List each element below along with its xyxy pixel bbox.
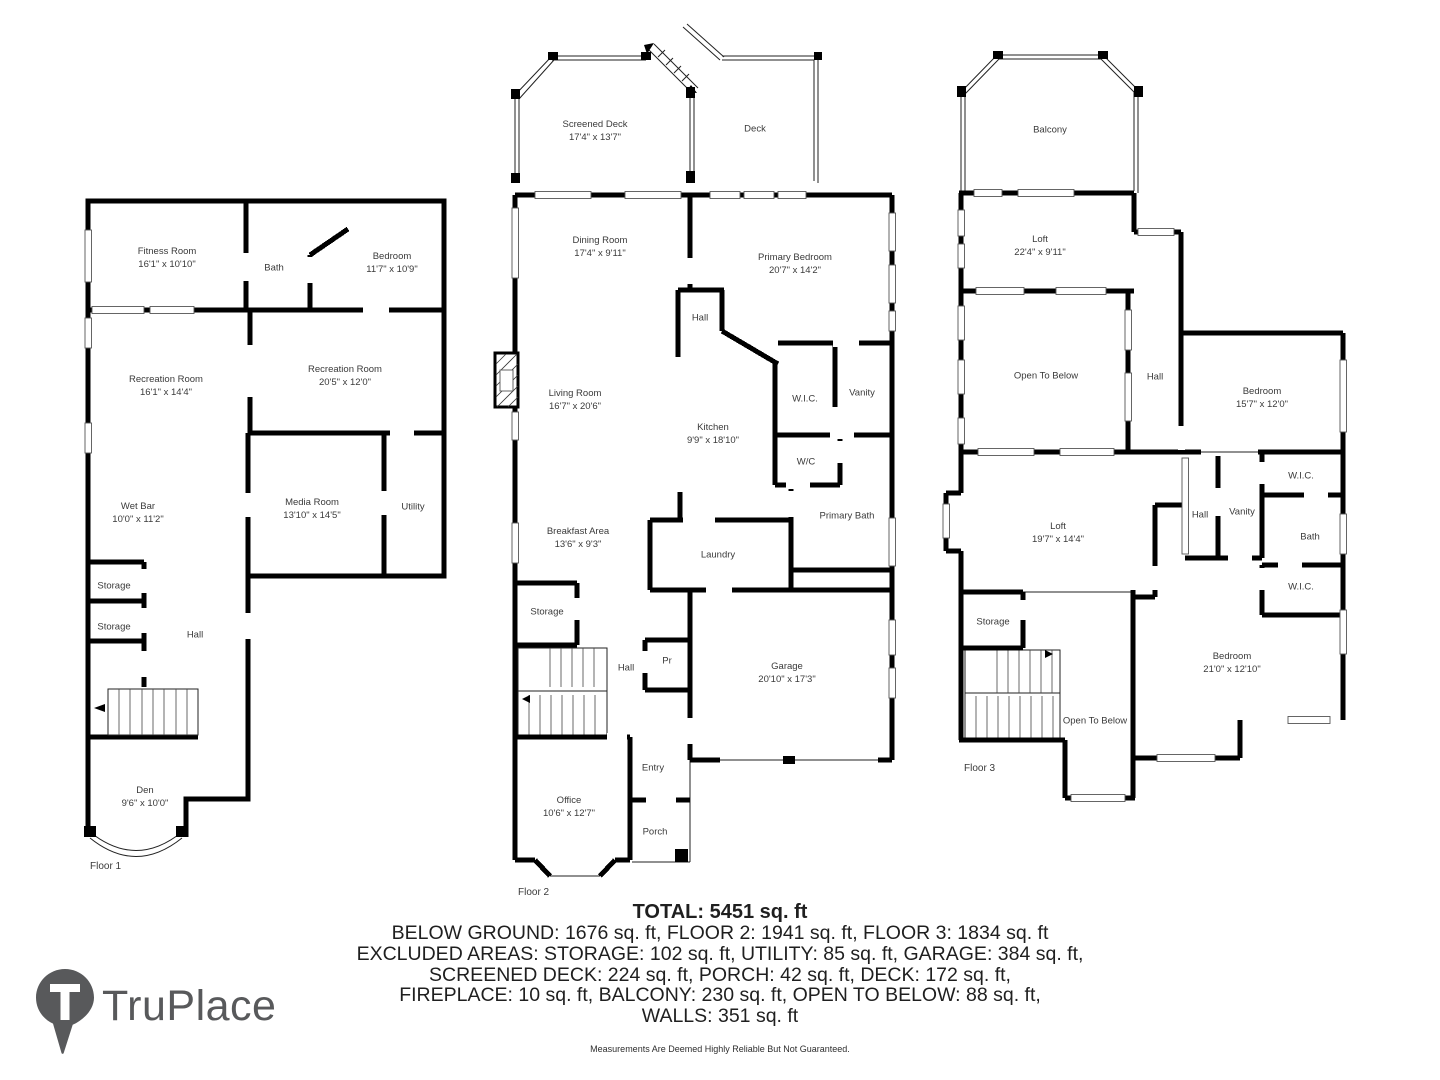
floor2-plan: Screened Deck17'4" x 13'7" Deck Dining R…: [488, 23, 900, 903]
room-label-hall: Hall: [187, 628, 203, 641]
floor2-label: Floor 2: [518, 887, 549, 898]
room-label-deck: Deck: [744, 122, 766, 135]
room-label-wic: W.I.C.: [792, 392, 818, 405]
room-label-hall-upper-f3: Hall: [1147, 370, 1163, 383]
room-label-kitchen: Kitchen9'9" x 18'10": [687, 421, 739, 447]
room-label-vanity: Vanity: [849, 386, 875, 399]
room-label-bedroom2-f3: Bedroom21'0" x 12'10": [1203, 650, 1260, 676]
room-label-storage1: Storage: [97, 579, 130, 592]
room-label-entry: Entry: [642, 761, 664, 774]
room-label-office: Office10'6" x 12'7": [543, 794, 595, 820]
floor2-plan-drawing: [488, 23, 900, 903]
room-label-pr: Pr: [662, 654, 672, 667]
room-label-primary-bedroom: Primary Bedroom20'7" x 14'2": [758, 251, 832, 277]
room-label-loft1: Loft22'4" x 9'11": [1014, 233, 1065, 259]
floor3-plan: Balcony Loft22'4" x 9'11" Open To Below …: [938, 38, 1353, 813]
floor1-plan-drawing: [80, 193, 455, 883]
room-label-vanity-f3: Vanity: [1229, 505, 1255, 518]
room-label-open-below2: Open To Below: [1063, 714, 1127, 727]
truplace-wordmark: TruPlace: [102, 985, 276, 1040]
floorplan-page: { "floor1": { "label": "Floor 1", "rooms…: [0, 0, 1440, 1080]
room-label-loft2: Loft19'7" x 14'4": [1032, 520, 1084, 546]
room-label-media: Media Room13'10" x 14'5": [283, 496, 340, 522]
room-label-living: Living Room16'7" x 20'6": [549, 387, 602, 413]
truplace-pin-icon: [36, 969, 94, 1055]
floor3-plan-drawing: [938, 38, 1353, 813]
room-label-storage2: Storage: [97, 620, 130, 633]
room-label-rec2: Recreation Room20'5" x 12'0": [308, 363, 382, 389]
room-label-bath-f3: Bath: [1300, 530, 1320, 543]
room-label-storage-f3: Storage: [976, 615, 1009, 628]
summary-line: BELOW GROUND: 1676 sq. ft, FLOOR 2: 1941…: [0, 923, 1440, 944]
summary-total: TOTAL: 5451 sq. ft: [0, 901, 1440, 923]
room-label-bath: Bath: [264, 261, 284, 274]
room-label-primary-bath: Primary Bath: [820, 509, 875, 522]
room-label-utility: Utility: [401, 500, 424, 513]
room-label-bedroom1-f3: Bedroom15'7" x 12'0": [1236, 385, 1288, 411]
room-label-rec1: Recreation Room16'1" x 14'4": [129, 373, 203, 399]
room-label-hall-upper: Hall: [692, 311, 708, 324]
room-label-garage: Garage20'10" x 17'3": [758, 660, 815, 686]
room-label-wc: W/C: [797, 455, 815, 468]
room-label-dining: Dining Room17'4" x 9'11": [573, 234, 628, 260]
floor1-plan: Fitness Room16'1" x 10'10" Bath Bedroom1…: [80, 193, 455, 883]
room-label-breakfast: Breakfast Area13'6" x 9'3": [547, 525, 609, 551]
floor1-label: Floor 1: [90, 861, 121, 872]
room-label-porch: Porch: [643, 825, 668, 838]
room-label-open-below1: Open To Below: [1014, 369, 1078, 382]
room-label-wic2-f3: W.I.C.: [1288, 580, 1314, 593]
room-label-wetbar: Wet Bar10'0" x 11'2": [112, 500, 163, 526]
room-label-den: Den9'6" x 10'0": [122, 784, 169, 810]
truplace-logo: TruPlace: [36, 969, 276, 1055]
floor3-label: Floor 3: [964, 763, 995, 774]
room-label-storage-f2: Storage: [530, 605, 563, 618]
room-label-balcony: Balcony: [1033, 123, 1067, 136]
room-label-screened-deck: Screened Deck17'4" x 13'7": [563, 118, 628, 144]
room-label-fitness: Fitness Room16'1" x 10'10": [138, 245, 197, 271]
room-label-hall-lower: Hall: [618, 661, 634, 674]
room-label-hall-lower-f3: Hall: [1192, 508, 1208, 521]
room-label-laundry: Laundry: [701, 548, 735, 561]
summary-line: EXCLUDED AREAS: STORAGE: 102 sq. ft, UTI…: [0, 944, 1440, 965]
room-label-bedroom: Bedroom11'7" x 10'9": [366, 250, 417, 276]
room-label-wic1-f3: W.I.C.: [1288, 469, 1314, 482]
